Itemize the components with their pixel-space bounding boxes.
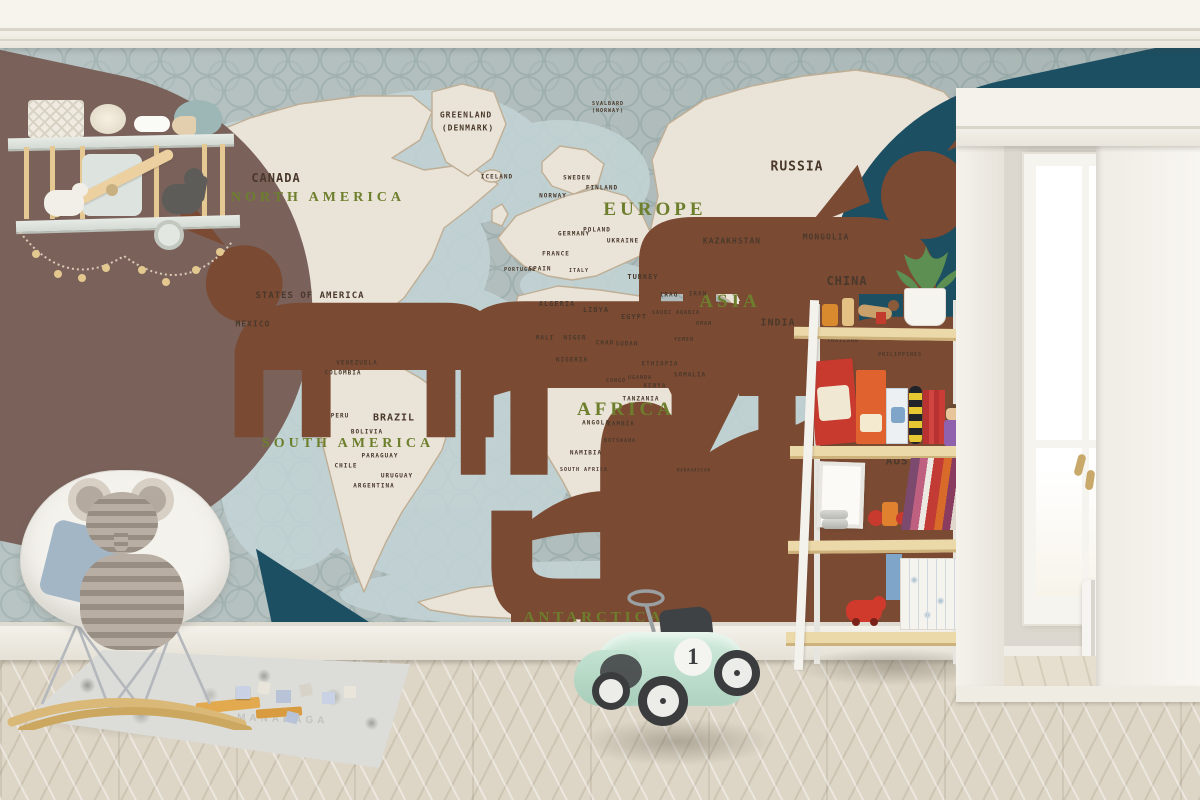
game-box-label	[817, 385, 852, 422]
ride-on-toy-car: 1	[566, 588, 776, 760]
molding-groove	[0, 28, 1200, 31]
elephant-figurine	[162, 168, 204, 216]
kids-room-photo: NORTH AMERICASOUTH AMERICAEUROPEASIAAFRI…	[0, 0, 1200, 800]
toy-wheel	[852, 618, 860, 626]
rocking-chair	[2, 462, 264, 730]
door-trim-top	[956, 88, 1200, 146]
figure-head	[888, 300, 899, 311]
door-threshold	[956, 686, 1200, 702]
toy-wheel	[870, 618, 878, 626]
polar-bear-figurine	[44, 190, 84, 216]
propeller-hub	[106, 184, 118, 196]
game-box-label	[860, 414, 882, 432]
chair-rockers	[2, 680, 264, 730]
plant-pot	[904, 288, 946, 326]
board-game-box	[808, 358, 859, 446]
toy-block	[299, 683, 313, 697]
crown-molding	[0, 0, 1200, 48]
wheel-hub	[599, 679, 623, 703]
cloud-toy	[134, 116, 170, 132]
molding-groove	[0, 39, 1200, 41]
game-box-white	[886, 388, 908, 444]
car-wheel-front-left	[592, 672, 630, 710]
red-elephant-toy	[846, 596, 886, 626]
car-wheel-rear-left	[638, 676, 688, 726]
shelf-board-1	[794, 327, 982, 342]
hub-dot	[734, 670, 740, 676]
striped-toy	[909, 386, 922, 444]
toy-block	[322, 692, 335, 704]
plush-elephant-body	[80, 554, 184, 650]
toy-block	[276, 690, 291, 703]
window-mullion	[1082, 166, 1089, 596]
small-red-toy	[876, 312, 886, 324]
iceland	[482, 170, 502, 182]
wooden-toy	[842, 298, 854, 326]
bear-head	[72, 183, 88, 197]
doorway	[956, 88, 1200, 702]
trim-groove	[956, 126, 1200, 129]
tin-can	[820, 510, 848, 519]
hub-dot	[660, 698, 666, 704]
shelf-strut	[220, 144, 225, 219]
car-number: 1	[687, 644, 699, 670]
biplane-wall-shelf	[6, 92, 242, 308]
tin-can	[822, 519, 848, 529]
car-wheel-right	[714, 650, 760, 696]
board-game-box	[856, 370, 886, 444]
door-jamb-right	[1096, 144, 1200, 702]
door-trim-left	[956, 142, 1006, 702]
hedgehog-toy	[174, 100, 222, 136]
ceramic-pumpkin	[90, 104, 126, 134]
bead-garland	[6, 222, 242, 308]
game-box-art	[891, 407, 905, 423]
wooden-toy	[822, 304, 838, 326]
hedgehog-face	[172, 116, 196, 136]
toy-block	[344, 686, 356, 698]
shelf-strut	[24, 147, 29, 219]
storage-basket	[28, 100, 84, 138]
red-elephant-head	[872, 596, 886, 612]
plush-elephant-trunk	[114, 528, 128, 552]
car-number-roundel: 1	[674, 638, 712, 676]
small-toy	[882, 502, 898, 526]
